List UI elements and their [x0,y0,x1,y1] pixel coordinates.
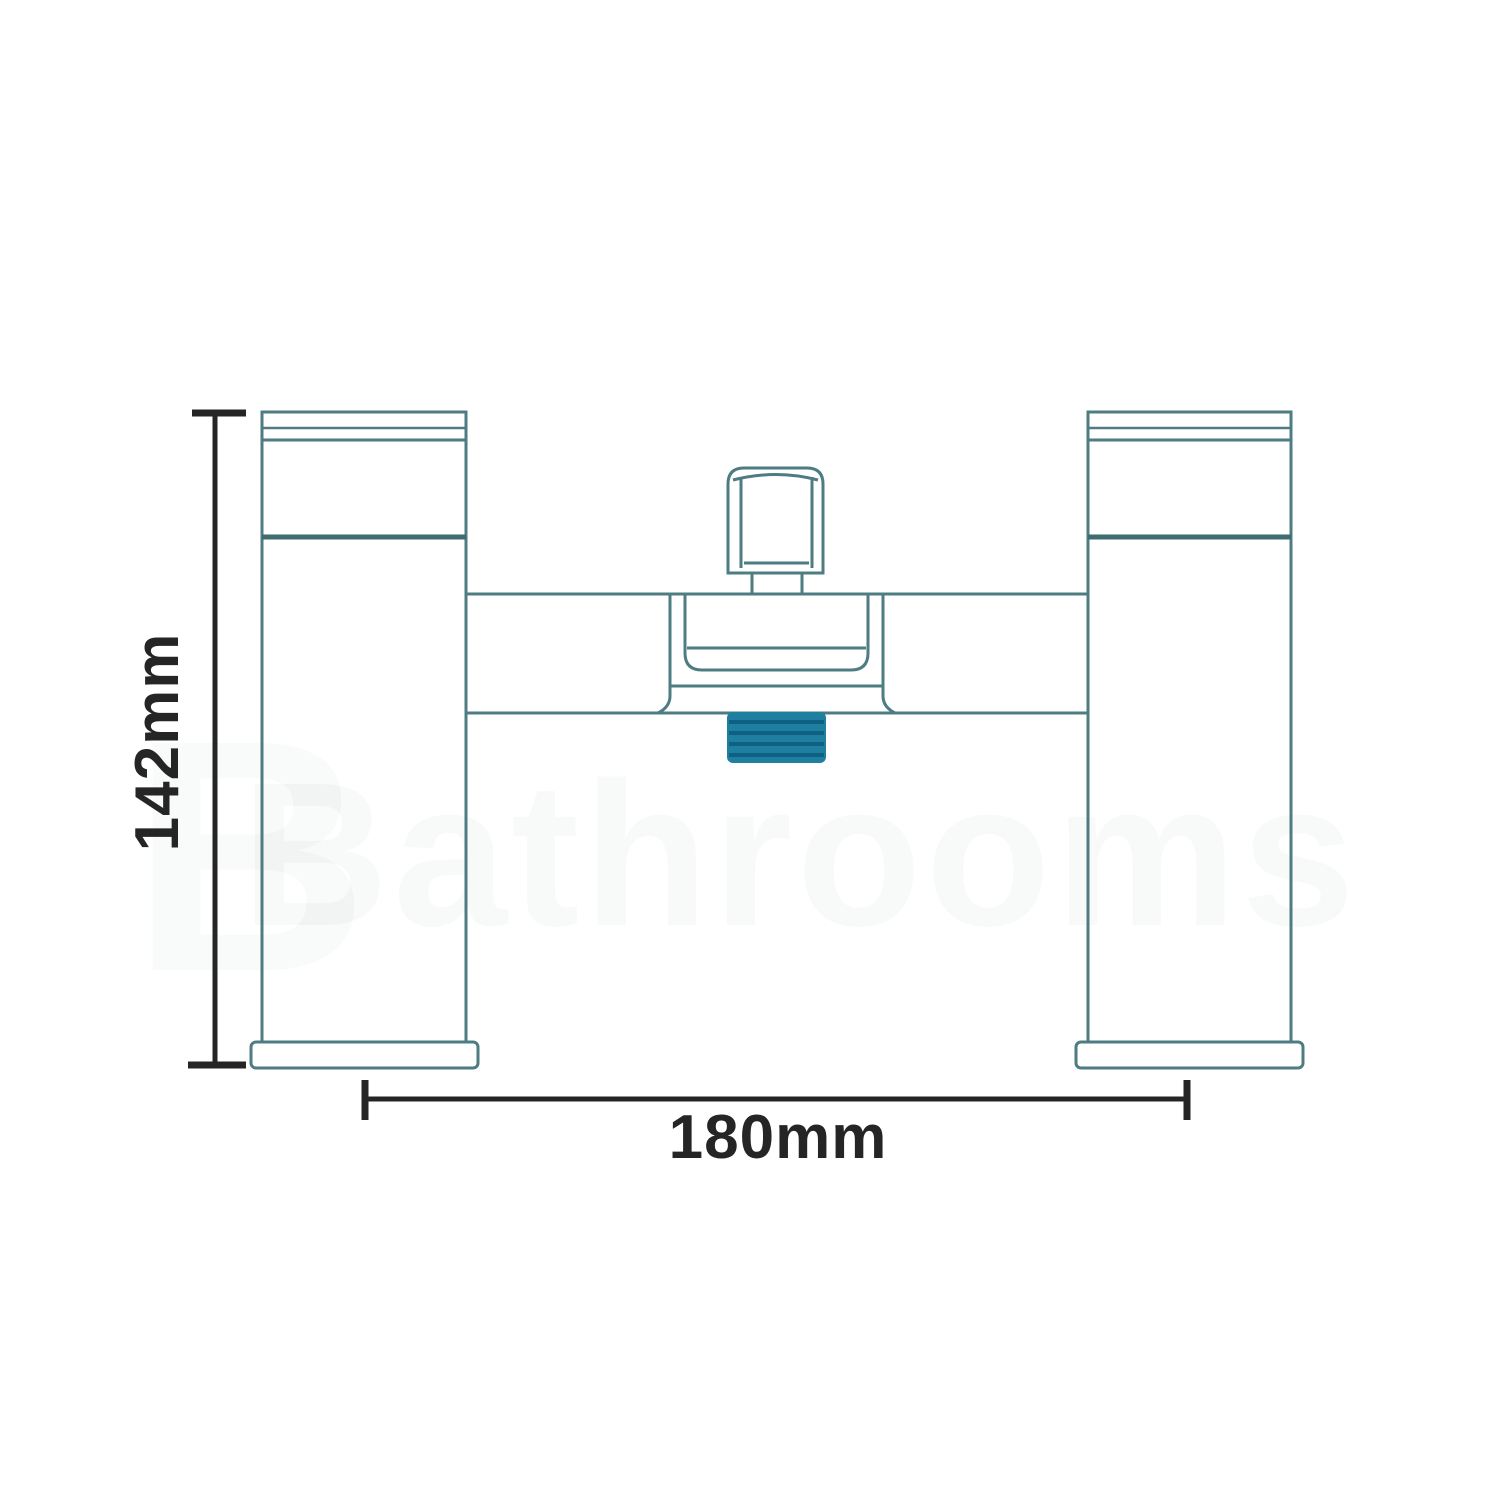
technical-drawing-page: B Bathrooms [0,0,1500,1500]
recess-outer-wall-right [883,594,895,713]
right-pillar-base [1076,1042,1303,1068]
spout-recess [658,594,895,713]
width-dimension-label: 180mm [669,1103,888,1172]
knob-top-rim [733,475,818,481]
recess-outer-wall-left [658,594,670,713]
recess-inner-u [685,594,868,670]
shower-outlet [727,712,826,763]
connector-bar [465,594,1088,713]
bath-mixer-diagram: B Bathrooms [0,0,1500,1500]
height-dimension-label: 142mm [123,633,192,852]
diverter-knob [728,468,823,594]
watermark-text: Bathrooms [241,740,1359,969]
left-pillar-base [251,1042,478,1068]
